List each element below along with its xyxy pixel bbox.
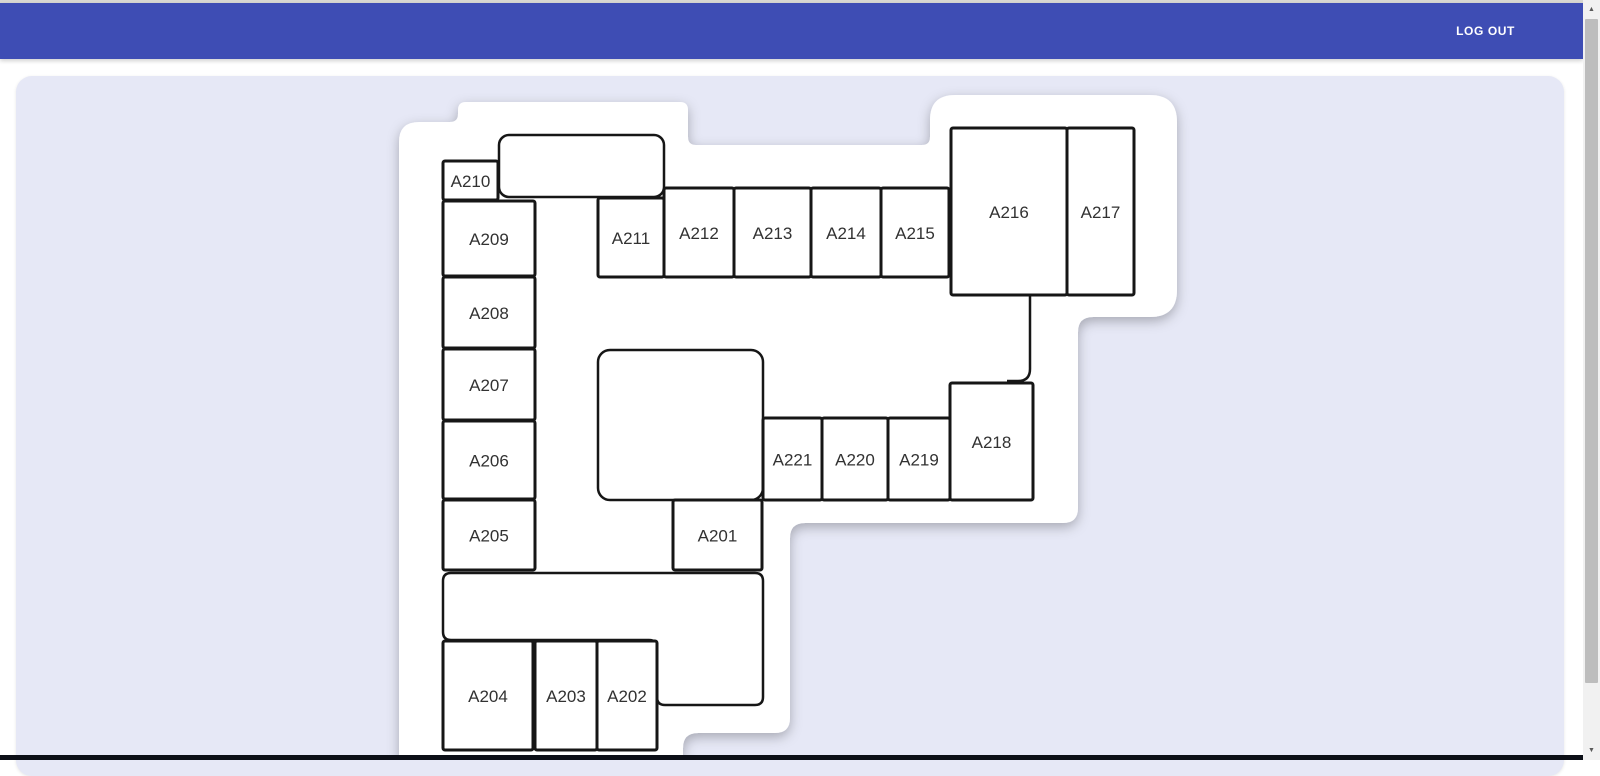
room-label-A214: A214 bbox=[826, 224, 866, 243]
room-label-A205: A205 bbox=[469, 527, 509, 546]
vertical-scrollbar[interactable]: ▲ ▼ bbox=[1583, 0, 1600, 760]
room-label-A203: A203 bbox=[546, 687, 586, 706]
floorplan-canvas: A210A209A208A207A206A205A204A203A202A211… bbox=[0, 0, 1600, 760]
room-label-A206: A206 bbox=[469, 452, 509, 471]
scroll-down-button[interactable]: ▼ bbox=[1583, 742, 1600, 759]
room-unlabeled-middle[interactable] bbox=[598, 350, 763, 500]
room-label-A209: A209 bbox=[469, 230, 509, 249]
window-bottom-edge bbox=[0, 755, 1600, 760]
scrollbar-thumb[interactable] bbox=[1585, 19, 1598, 683]
room-label-A208: A208 bbox=[469, 304, 509, 323]
scroll-up-button[interactable]: ▲ bbox=[1583, 1, 1600, 18]
room-label-A221: A221 bbox=[773, 451, 813, 470]
room-unlabeled-top[interactable] bbox=[499, 135, 664, 197]
room-label-A204: A204 bbox=[468, 687, 508, 706]
room-label-A220: A220 bbox=[835, 451, 875, 470]
room-label-A213: A213 bbox=[753, 224, 793, 243]
room-label-A215: A215 bbox=[895, 224, 935, 243]
room-label-A212: A212 bbox=[679, 224, 719, 243]
scroll-up-arrow-icon: ▲ bbox=[1588, 6, 1595, 13]
room-label-A211: A211 bbox=[612, 229, 650, 248]
room-label-A202: A202 bbox=[607, 687, 647, 706]
room-label-A216: A216 bbox=[989, 203, 1029, 222]
room-label-A201: A201 bbox=[698, 527, 738, 546]
room-label-A210: A210 bbox=[451, 172, 491, 191]
room-label-A219: A219 bbox=[899, 451, 939, 470]
scroll-down-arrow-icon: ▼ bbox=[1588, 747, 1595, 754]
room-label-A217: A217 bbox=[1081, 203, 1121, 222]
room-label-A207: A207 bbox=[469, 376, 509, 395]
room-label-A218: A218 bbox=[972, 433, 1012, 452]
